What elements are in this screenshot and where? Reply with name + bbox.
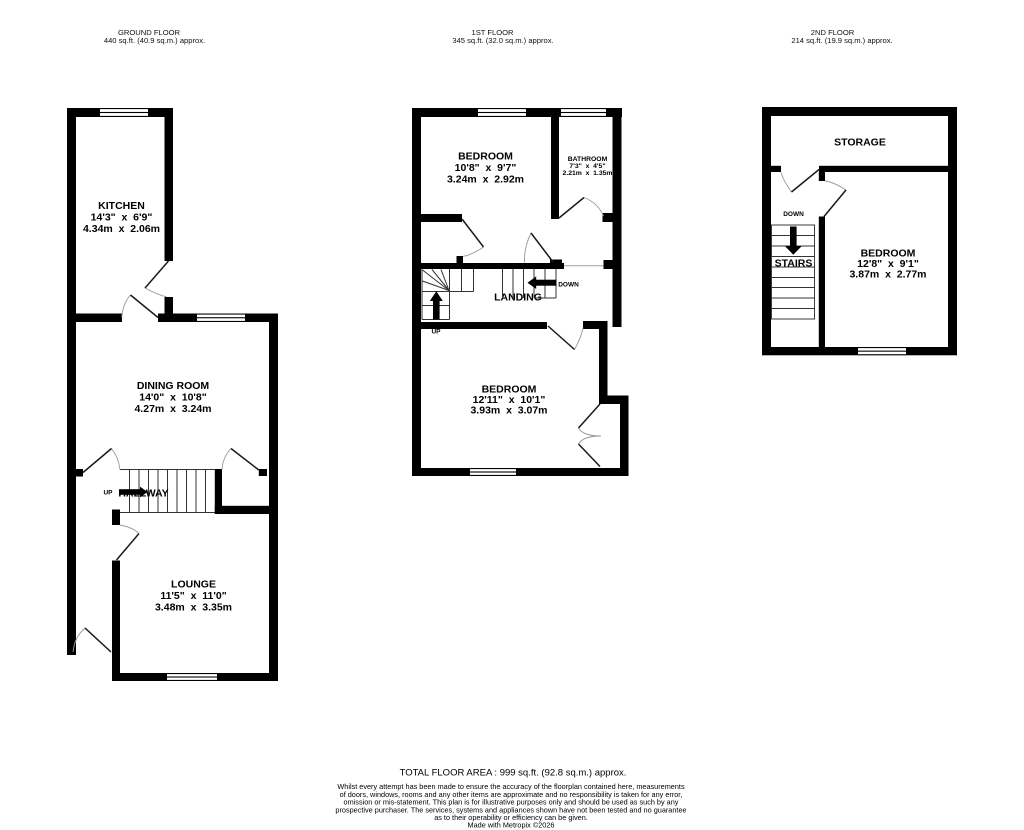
svg-text:LOUNGE: LOUNGE: [171, 579, 216, 591]
svg-text:3.93m x 3.07m: 3.93m x 3.07m: [470, 405, 547, 417]
svg-text:345 sq.ft. (32.0 sq.m.) approx: 345 sq.ft. (32.0 sq.m.) approx.: [452, 36, 553, 45]
svg-text:3.48m x 3.35m: 3.48m x 3.35m: [155, 602, 232, 614]
svg-text:DINING ROOM: DINING ROOM: [137, 380, 210, 392]
svg-text:3.24m x 2.92m: 3.24m x 2.92m: [447, 174, 524, 186]
svg-text:14'3" x 6'9": 14'3" x 6'9": [91, 212, 153, 224]
svg-text:KITCHEN: KITCHEN: [98, 200, 145, 212]
svg-text:DOWN: DOWN: [558, 281, 579, 288]
svg-text:DOWN: DOWN: [783, 211, 804, 218]
svg-text:4.34m x 2.06m: 4.34m x 2.06m: [83, 223, 160, 235]
svg-text:2.21m x 1.35m: 2.21m x 1.35m: [563, 170, 613, 177]
svg-text:4.27m x 3.24m: 4.27m x 3.24m: [134, 403, 211, 415]
svg-text:UP: UP: [103, 490, 113, 497]
svg-text:STORAGE: STORAGE: [834, 137, 886, 149]
svg-text:BEDROOM: BEDROOM: [458, 151, 513, 163]
svg-text:Made with Metropix ©2026: Made with Metropix ©2026: [468, 821, 555, 830]
svg-text:UP: UP: [431, 329, 441, 336]
svg-text:14'0" x 10'8": 14'0" x 10'8": [139, 392, 207, 404]
svg-text:3.87m x 2.77m: 3.87m x 2.77m: [849, 269, 926, 281]
svg-text:TOTAL FLOOR AREA : 999 sq.ft.: TOTAL FLOOR AREA : 999 sq.ft. (92.8 sq.m…: [400, 768, 627, 779]
svg-text:7'3" x 4'5": 7'3" x 4'5": [569, 163, 605, 170]
svg-text:440 sq.ft. (40.9 sq.m.) approx: 440 sq.ft. (40.9 sq.m.) approx.: [104, 36, 205, 45]
svg-text:10'8" x 9'7": 10'8" x 9'7": [455, 162, 517, 174]
svg-text:214 sq.ft. (19.9 sq.m.) approx: 214 sq.ft. (19.9 sq.m.) approx.: [791, 36, 892, 45]
svg-text:STAIRS: STAIRS: [775, 258, 813, 270]
svg-text:11'5" x 11'0": 11'5" x 11'0": [160, 590, 226, 602]
svg-text:BATHROOM: BATHROOM: [568, 156, 608, 163]
